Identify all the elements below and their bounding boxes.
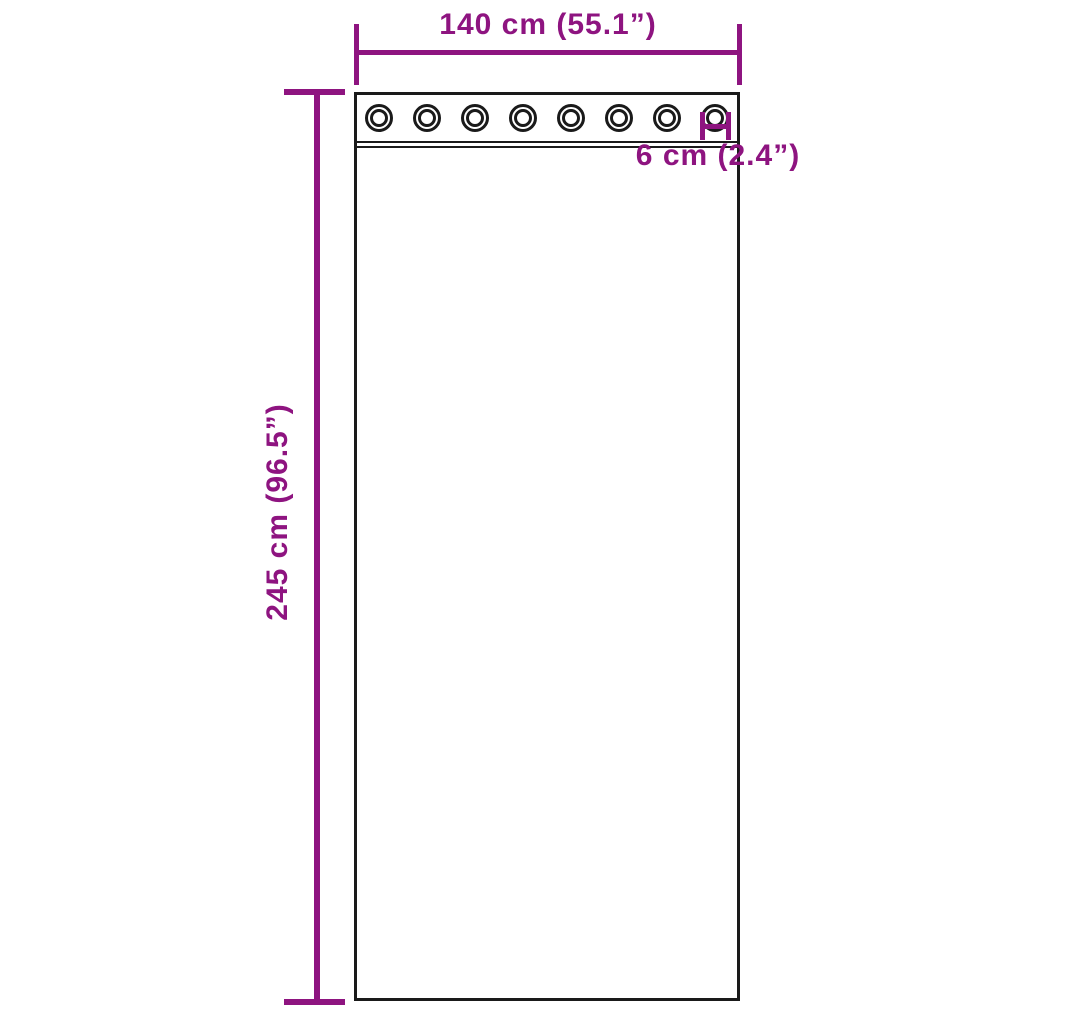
dimension-diagram: 140 cm (55.1”) 245 cm (96.5”) 6 cm (2.4”… xyxy=(0,0,1069,1024)
curtain-panel-outline xyxy=(354,92,740,1001)
grommet-icon xyxy=(557,104,585,132)
grommet-inner-ring xyxy=(466,109,484,127)
grommet-inner-ring xyxy=(562,109,580,127)
height-dimension-label: 245 cm (96.5”) xyxy=(261,403,295,620)
grommet-dimension-bar xyxy=(700,124,731,129)
grommet-icon xyxy=(653,104,681,132)
grommet-icon xyxy=(509,104,537,132)
grommet-icon xyxy=(461,104,489,132)
grommet-icon xyxy=(605,104,633,132)
width-dimension-line xyxy=(354,50,742,55)
height-dimension-line xyxy=(314,89,320,1002)
height-dimension-tick-bottom xyxy=(284,999,345,1005)
grommet-row xyxy=(354,95,740,141)
grommet-icon xyxy=(365,104,393,132)
grommet-inner-ring xyxy=(610,109,628,127)
width-dimension-label: 140 cm (55.1”) xyxy=(354,8,742,42)
grommet-dimension-label: 6 cm (2.4”) xyxy=(632,139,804,173)
height-dimension-tick-top xyxy=(284,89,345,95)
grommet-icon xyxy=(413,104,441,132)
grommet-inner-ring xyxy=(370,109,388,127)
grommet-inner-ring xyxy=(418,109,436,127)
grommet-inner-ring xyxy=(658,109,676,127)
grommet-inner-ring xyxy=(514,109,532,127)
